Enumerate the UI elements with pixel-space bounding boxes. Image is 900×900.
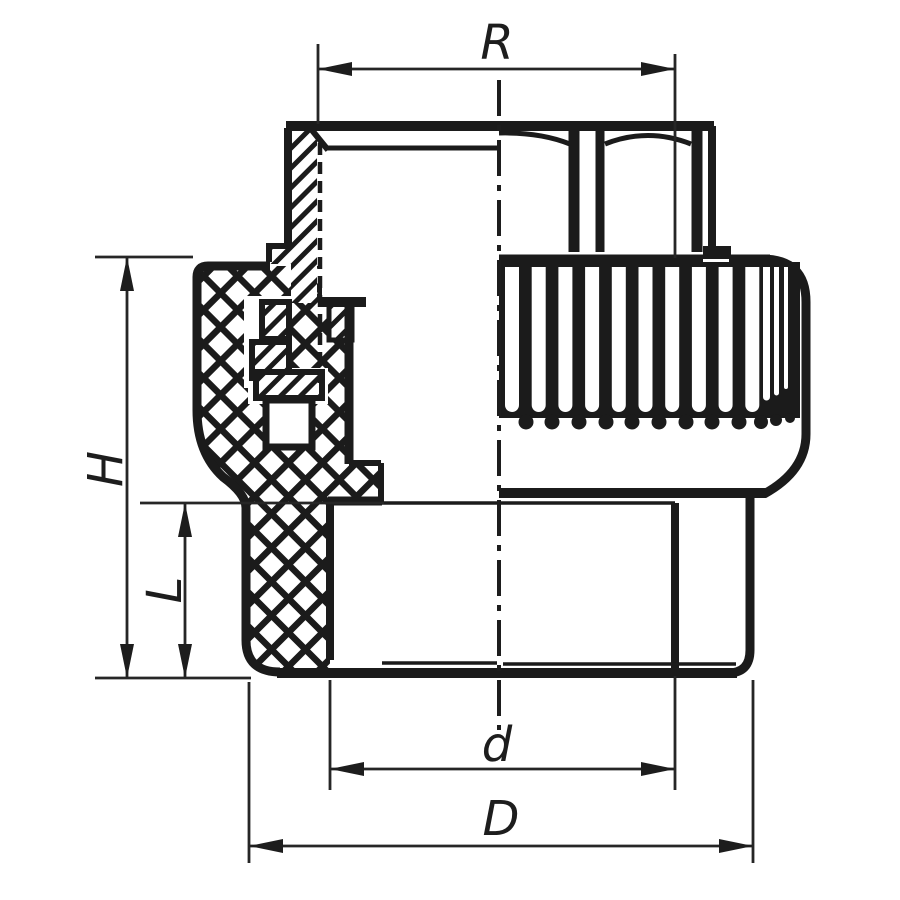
dim-d-arrow-left (330, 762, 364, 776)
exterior-view-right-half (499, 126, 806, 673)
bore-step-white (381, 463, 498, 502)
drawing-page: R H L d (0, 0, 900, 900)
dimension-d: d (330, 676, 675, 790)
insert-flange-hatch (256, 372, 322, 398)
dim-d-arrow-right (641, 762, 675, 776)
dim-R-arrow-left (318, 62, 352, 76)
dim-d-label: d (482, 717, 513, 773)
nut-rim-step (703, 246, 731, 259)
hex-face-arc-center (605, 136, 691, 145)
dim-H-label: H (78, 451, 134, 487)
union-nut (499, 246, 806, 673)
union-fitting-diagram: R H L d (0, 0, 900, 900)
bore-upper-white (322, 138, 498, 302)
dim-L-label: L (137, 577, 193, 604)
thread-stub-hatch (291, 126, 317, 303)
dim-R-arrow-right (641, 62, 675, 76)
dim-R-label: R (480, 15, 513, 71)
bore-mid-white (352, 302, 498, 463)
seal-pocket (266, 400, 312, 447)
dim-H-arrow-top (120, 257, 134, 291)
dim-L-arrow-bottom (178, 644, 192, 678)
dim-D-arrow-right (719, 839, 753, 853)
tooth-step-1 (262, 302, 289, 339)
bore-lower-white (331, 504, 498, 659)
hex-end (499, 126, 712, 252)
dim-D-label: D (483, 791, 520, 847)
knurl (499, 262, 800, 430)
hex-face-arc-left (499, 133, 570, 144)
barrel-right-edge (728, 497, 750, 673)
dim-D-arrow-left (249, 839, 283, 853)
dim-H-arrow-bottom (120, 644, 134, 678)
dim-L-arrow-top (178, 503, 192, 537)
